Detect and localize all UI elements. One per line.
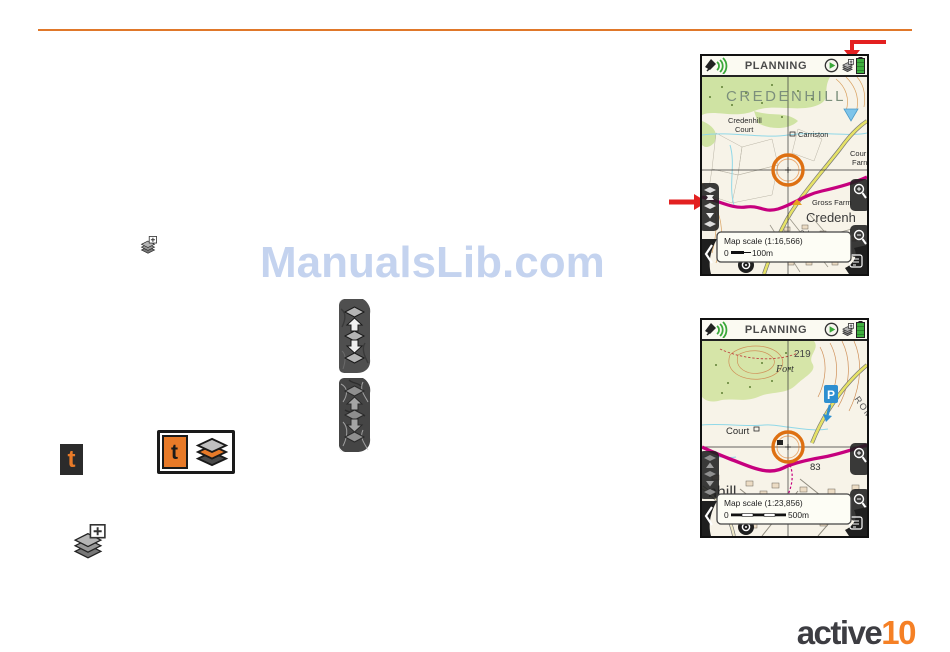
map-view-1: CREDENHILL Credenhill Court Carriston Co… — [702, 77, 867, 274]
t-logo-letter: t — [68, 448, 76, 472]
brand-logo-word: active — [797, 614, 882, 651]
device-screenshot-1: PLANNING — [700, 54, 869, 276]
map-label-gross-farm: Gross Farm — [812, 198, 852, 207]
zoom-in-button — [850, 443, 867, 475]
map-view-2: P 219 Fort Court ROMAN 83 nhill — [702, 341, 867, 536]
t-layers-boxed-icon: t — [157, 430, 235, 474]
map-label-credenhill-large: CREDENHILL — [726, 88, 846, 105]
play-route-icon — [824, 322, 839, 337]
device-header-2: PLANNING — [702, 320, 867, 341]
map-scale-label: Map scale (1:16,566) — [724, 236, 803, 246]
map-label-carriston: Carriston — [798, 130, 828, 139]
zoom-in-button — [850, 179, 867, 211]
layer-selector-tab-disabled — [702, 451, 719, 499]
topo-map-1: CREDENHILL Credenhill Court Carriston Co… — [702, 77, 867, 274]
scale-end: 100m — [752, 248, 773, 258]
layer-selector-button-disabled — [339, 378, 371, 452]
watermark: ManualsLib.com — [260, 238, 605, 288]
map-layers-plus-icon-small — [139, 236, 157, 255]
t-tile-icon: t — [162, 435, 188, 469]
map-label-credenhill-court-1: Credenhill — [728, 116, 762, 125]
map-label-credenhill-court-2: Court — [735, 125, 754, 134]
battery-icon — [856, 321, 865, 338]
screen-title: PLANNING — [730, 60, 822, 72]
layer-selector-tab — [702, 183, 719, 231]
map-scale-box: Map scale (1:23,856) 0 500m — [717, 494, 851, 524]
map-scale-label: Map scale (1:23,856) — [724, 498, 803, 508]
scale-zero: 0 — [724, 510, 729, 520]
map-layers-plus-icon-large — [70, 524, 106, 561]
gps-signal-icon — [704, 321, 728, 338]
map-label-fort: Fort — [775, 364, 794, 375]
gps-signal-icon — [704, 57, 728, 74]
page-top-rule — [38, 29, 912, 31]
topo-map-2: P 219 Fort Court ROMAN 83 nhill — [702, 341, 867, 536]
parking-letter: P — [827, 388, 835, 402]
brand-logo: active10 — [715, 614, 915, 652]
layer-selector-button-enabled — [339, 299, 371, 373]
map-label-court: Court — [726, 426, 750, 437]
map-label-83: 83 — [810, 462, 821, 473]
screen-title: PLANNING — [730, 324, 822, 336]
play-route-icon — [824, 58, 839, 73]
map-layers-plus-icon — [841, 59, 854, 73]
map-label-credenh: Credenh — [806, 210, 856, 225]
map-label-219: 219 — [794, 349, 811, 360]
brand-logo-number: 10 — [881, 614, 915, 651]
device-header-1: PLANNING — [702, 56, 867, 77]
map-label-court-farm-2: Farn — [852, 158, 867, 167]
map-label-court-farm-1: Cour — [850, 149, 867, 158]
t-logo-icon: t — [60, 444, 83, 475]
device-screenshot-2: PLANNING — [700, 318, 869, 538]
battery-icon — [856, 57, 865, 74]
map-scale-box: Map scale (1:16,566) 0 100m — [717, 232, 851, 262]
t-tile-letter: t — [171, 442, 178, 463]
scale-zero: 0 — [724, 248, 729, 258]
scale-end: 500m — [788, 510, 809, 520]
layers-stack-icon — [193, 437, 231, 467]
map-layers-plus-icon — [841, 323, 854, 337]
